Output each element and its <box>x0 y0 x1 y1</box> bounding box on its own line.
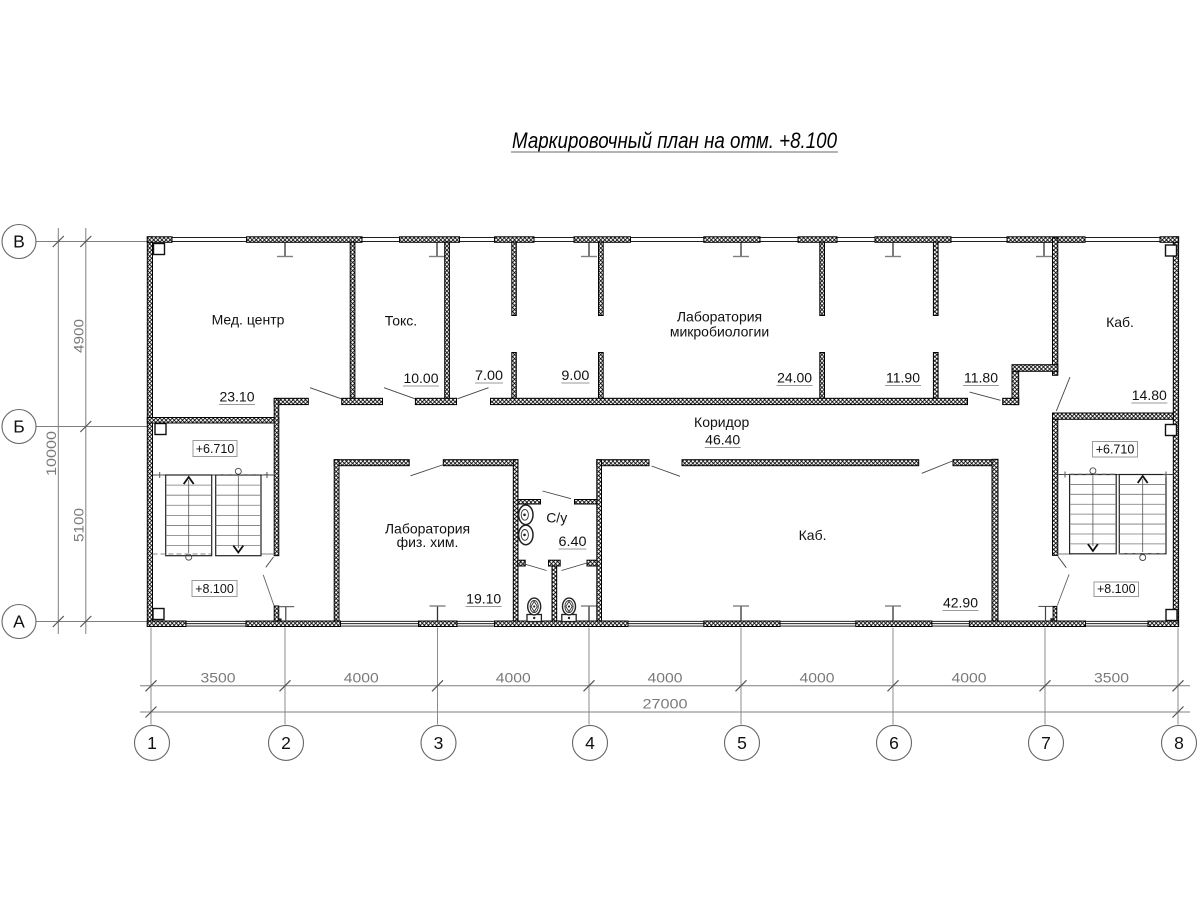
svg-text:С/у: С/у <box>546 510 567 526</box>
svg-text:27000: 27000 <box>643 697 688 712</box>
svg-text:Лаборатория: Лаборатория <box>677 309 762 325</box>
svg-text:Каб.: Каб. <box>1106 314 1134 330</box>
svg-text:1: 1 <box>147 733 157 753</box>
svg-text:5100: 5100 <box>72 508 87 542</box>
svg-text:10.00: 10.00 <box>403 370 438 386</box>
svg-text:4000: 4000 <box>952 671 987 686</box>
svg-text:3500: 3500 <box>201 671 236 686</box>
svg-text:19.10: 19.10 <box>466 591 501 607</box>
svg-text:46.40: 46.40 <box>705 432 740 448</box>
svg-text:2: 2 <box>281 733 291 753</box>
svg-text:+8.100: +8.100 <box>1097 582 1136 596</box>
svg-text:4000: 4000 <box>800 671 835 686</box>
svg-text:10000: 10000 <box>44 431 59 476</box>
svg-text:Маркировочный план на отм. +8.: Маркировочный план на отм. +8.100 <box>512 128 838 153</box>
svg-text:+6.710: +6.710 <box>196 442 235 456</box>
svg-text:14.80: 14.80 <box>1132 387 1167 403</box>
svg-text:4000: 4000 <box>344 671 379 686</box>
svg-text:6.40: 6.40 <box>559 533 587 549</box>
svg-text:3: 3 <box>434 733 444 753</box>
svg-text:Токс.: Токс. <box>385 313 417 329</box>
svg-text:3500: 3500 <box>1094 671 1129 686</box>
svg-text:Коридор: Коридор <box>694 414 750 430</box>
svg-text:+8.100: +8.100 <box>195 582 234 596</box>
svg-text:42.90: 42.90 <box>943 595 978 611</box>
svg-text:4: 4 <box>585 733 595 753</box>
svg-text:микробиологии: микробиологии <box>670 324 769 340</box>
svg-text:7: 7 <box>1041 733 1051 753</box>
svg-text:4000: 4000 <box>648 671 683 686</box>
svg-text:В: В <box>13 232 25 252</box>
svg-text:8: 8 <box>1174 733 1184 753</box>
svg-text:7.00: 7.00 <box>475 367 503 383</box>
svg-text:6: 6 <box>889 733 899 753</box>
svg-text:+6.710: +6.710 <box>1096 443 1135 457</box>
svg-text:А: А <box>13 612 25 632</box>
svg-text:4000: 4000 <box>496 671 531 686</box>
svg-text:9.00: 9.00 <box>561 367 589 383</box>
svg-text:Каб.: Каб. <box>799 527 827 543</box>
svg-text:5: 5 <box>737 733 747 753</box>
svg-text:23.10: 23.10 <box>219 389 254 405</box>
svg-text:11.90: 11.90 <box>886 370 920 386</box>
svg-text:Б: Б <box>13 417 24 437</box>
svg-text:24.00: 24.00 <box>777 370 812 386</box>
svg-text:11.80: 11.80 <box>964 370 998 386</box>
svg-text:4900: 4900 <box>72 319 87 353</box>
svg-text:физ. хим.: физ. хим. <box>397 534 459 550</box>
svg-text:Мед. центр: Мед. центр <box>212 312 285 328</box>
